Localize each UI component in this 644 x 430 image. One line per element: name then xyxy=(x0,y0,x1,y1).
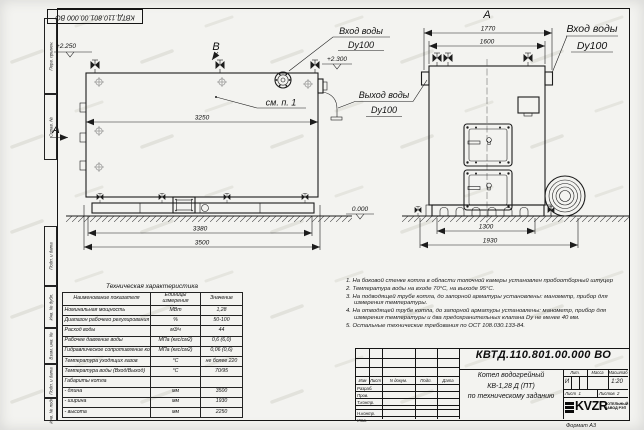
tech-table-cell: 1,28 xyxy=(201,306,243,316)
tech-table-cell: Расход воды xyxy=(63,326,151,336)
note-line: 3. На подводящей трубе котла, до запорно… xyxy=(346,294,632,308)
sheets-number: 2 xyxy=(617,391,619,396)
col-izm: Изм xyxy=(356,378,369,383)
margin-box-podp-data-2: Подп. и дата xyxy=(44,364,57,398)
tech-table-cell: Габариты котла xyxy=(63,377,151,387)
product-line-1: Котел водогрейный xyxy=(459,371,563,382)
lit-value: И xyxy=(563,379,571,385)
product-name: Котел водогрейный КВ-1,28 Д (ПТ) по техн… xyxy=(459,371,563,403)
margin-box-sprav-no: Справ. № xyxy=(44,94,57,160)
tech-table-cell: Температура уходящих газов xyxy=(63,356,151,366)
tech-table: Наименование показателя Единицы измерени… xyxy=(62,292,243,418)
tech-table-cell xyxy=(151,377,201,387)
product-line-3: по техническому заданию xyxy=(459,392,563,403)
tech-table-row: - ширинамм1930 xyxy=(63,397,243,407)
tech-table-cell: 2250 xyxy=(201,407,243,417)
col-dokum: N докум. xyxy=(382,378,415,383)
tech-table-cell: мм xyxy=(151,397,201,407)
tech-table-cell: м3/ч xyxy=(151,326,201,336)
tech-table-cell: 1930 xyxy=(201,397,243,407)
col-data: Дата xyxy=(437,378,459,383)
tech-table-cell xyxy=(201,377,243,387)
margin-box-inv-dubl: Инв. № дубл. xyxy=(44,286,57,328)
product-line-2: КВ-1,28 Д (ПТ) xyxy=(459,382,563,393)
tech-table-cell: - ширина xyxy=(63,397,151,407)
kvzr-logo-text: KVZR xyxy=(575,399,607,413)
margin-label: Справ. № xyxy=(48,117,53,137)
margin-box-vzam-inv: Взам. инв. № xyxy=(44,328,57,364)
format-label: Формат А3 xyxy=(536,423,626,429)
tech-table-cell: МПа (кгс/см2) xyxy=(151,346,201,356)
tech-table-cell: °С xyxy=(151,367,201,377)
tech-table-row: Гидравлическое сопротивление котлаМПа (к… xyxy=(63,346,243,356)
col-list: Лист xyxy=(369,378,382,383)
sheet-number: 1 xyxy=(578,391,580,396)
tech-table-row: - длинамм3500 xyxy=(63,387,243,397)
margin-label: Подп. и дата xyxy=(48,242,53,270)
lit-header: Лит. xyxy=(563,370,587,375)
title-block-doc-number: КВТД.110.801.00.000 ВО xyxy=(459,349,628,369)
tech-table-cell: не более 220 xyxy=(201,356,243,366)
tech-table-row: Расход водым3/ч44 xyxy=(63,326,243,336)
org-name: КОТЕЛЬНЫЙ ЗАВОД РЭП xyxy=(605,402,628,411)
note-line: 1. На боковой стенке котла в области топ… xyxy=(346,278,632,285)
tech-col-name: Наименование показателя xyxy=(63,293,151,306)
drawing-sheet: 3250 3380 3500 +2.250 +2.300 0.000 B A с… xyxy=(0,0,644,430)
note-line: 4. На отводящей трубе котла, до запорной… xyxy=(346,308,632,322)
sign-prov: Пров. xyxy=(357,393,368,398)
mass-header: Масса xyxy=(587,370,608,375)
tech-table-row: Температура уходящих газов°Сне более 220 xyxy=(63,356,243,366)
tech-table-cell: - длина xyxy=(63,387,151,397)
sign-tkontr: Т.контр. xyxy=(357,400,374,405)
tech-table-cell: 3500 xyxy=(201,387,243,397)
tech-table-cell: Диапазон рабочего регулирования xyxy=(63,316,151,326)
tech-table-cell: МВт xyxy=(151,306,201,316)
tech-table-cell: 50-100 xyxy=(201,316,243,326)
sign-razrab: Разраб. xyxy=(357,386,373,391)
note-line: 2. Температура воды на входе 70°С, на вы… xyxy=(346,286,632,293)
margin-box-perv-primen: Перв. примен. xyxy=(44,18,57,94)
sign-nkontr: Н.контр. xyxy=(357,411,375,416)
tech-table-title: Техническая характеристика xyxy=(62,283,242,290)
scale-header: Масштаб xyxy=(608,370,628,375)
margin-label: Взам. инв. № xyxy=(48,332,53,359)
tech-table-cell: Рабочее давление воды xyxy=(63,336,151,346)
tech-table-cell: % xyxy=(151,316,201,326)
tech-table-cell: Гидравлическое сопротивление котла xyxy=(63,346,151,356)
top-stamp: КВТД.110.801.00.000 ВО xyxy=(47,9,143,24)
tech-table-body: Наименование показателя Единицы измерени… xyxy=(63,293,243,418)
tech-table-row: Габариты котла xyxy=(63,377,243,387)
scale-value: 1:20 xyxy=(606,379,628,385)
title-block: Изм Лист N докум. Подп. Дата Разраб. Про… xyxy=(355,348,630,421)
tech-table-row: Рабочее давление водыМПа (кгс/см2)0,6 (6… xyxy=(63,336,243,346)
margin-box-podp-data-1: Подп. и дата xyxy=(44,226,57,286)
tech-col-value: Значение xyxy=(201,293,243,306)
tech-table-cell: 70/95 xyxy=(201,367,243,377)
tech-table-cell: Температура воды (Вход/Выход) xyxy=(63,367,151,377)
tech-table-cell: °С xyxy=(151,356,201,366)
tech-table-cell: Номинальная мощность xyxy=(63,306,151,316)
org-line-2: ЗАВОД РЭП xyxy=(605,406,628,410)
tech-table-cell: 44 xyxy=(201,326,243,336)
tech-table-row: - высотамм2250 xyxy=(63,407,243,417)
sign-utv: Утв. xyxy=(357,418,367,423)
tech-table-cell: мм xyxy=(151,387,201,397)
tech-table-row: Температура воды (Вход/Выход)°С70/95 xyxy=(63,367,243,377)
margin-label: Перв. примен. xyxy=(48,41,53,70)
tech-table-cell: мм xyxy=(151,407,201,417)
tech-table-cell: 0,06 (0,6) xyxy=(201,346,243,356)
tech-table-cell: - высота xyxy=(63,407,151,417)
tech-table-header-row: Наименование показателя Единицы измерени… xyxy=(63,293,243,306)
margin-label: Инв. № подл. xyxy=(48,396,53,423)
sheets-label: Листов 2 xyxy=(599,391,619,396)
tech-table-cell: 0,6 (6,0) xyxy=(201,336,243,346)
tech-col-units: Единицы измерения xyxy=(151,293,201,306)
notes-list: 1. На боковой стенке котла в области топ… xyxy=(346,278,632,330)
margin-label: Инв. № дубл. xyxy=(48,293,53,320)
col-podp: Подп. xyxy=(415,378,437,383)
margin-label: Подп. и дата xyxy=(48,367,53,395)
margin-box-inv-podl: Инв. № подл. xyxy=(44,398,57,421)
top-stamp-number: КВТД.110.801.00.000 ВО xyxy=(55,13,134,20)
note-line: 5. Остальные технические требования по О… xyxy=(346,323,632,330)
tech-table-cell: МПа (кгс/см2) xyxy=(151,336,201,346)
tech-table-row: Диапазон рабочего регулирования%50-100 xyxy=(63,316,243,326)
sheet-label: Лист 1 xyxy=(565,391,581,396)
kvzr-emblem-icon xyxy=(565,402,574,415)
tech-table-row: Номинальная мощностьМВт1,28 xyxy=(63,306,243,316)
